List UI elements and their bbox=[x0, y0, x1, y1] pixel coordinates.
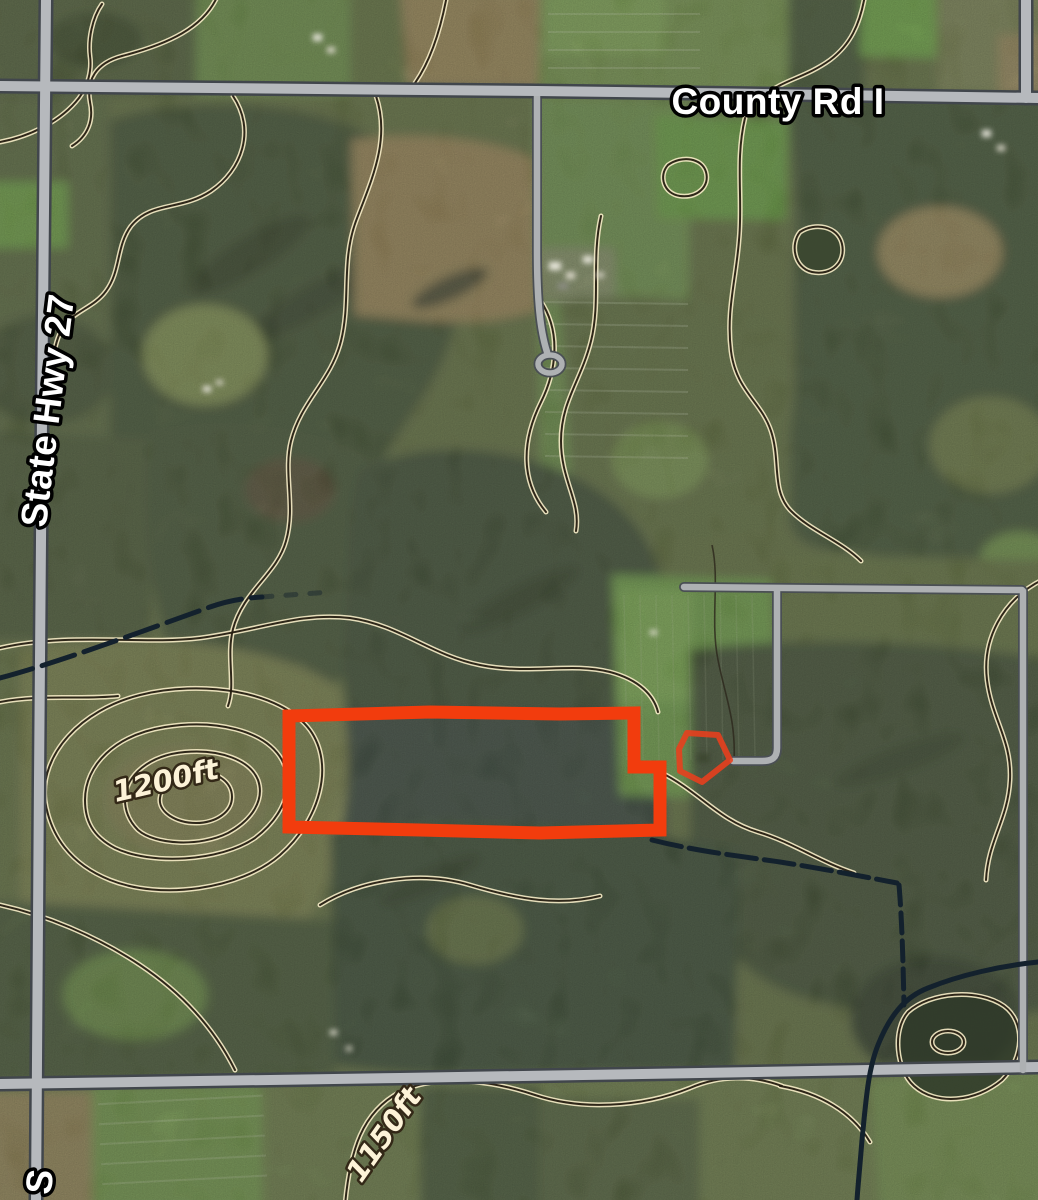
map-canvas: County Rd I State Hwy 27 S 1200ft 1150ft bbox=[0, 0, 1038, 1200]
map-viewport[interactable]: County Rd I State Hwy 27 S 1200ft 1150ft bbox=[0, 0, 1038, 1200]
texture-grain bbox=[0, 0, 1038, 1200]
road-label-state-hwy-27-partial: S bbox=[18, 1166, 62, 1196]
road-label-county-rd-i: County Rd I bbox=[671, 81, 884, 122]
